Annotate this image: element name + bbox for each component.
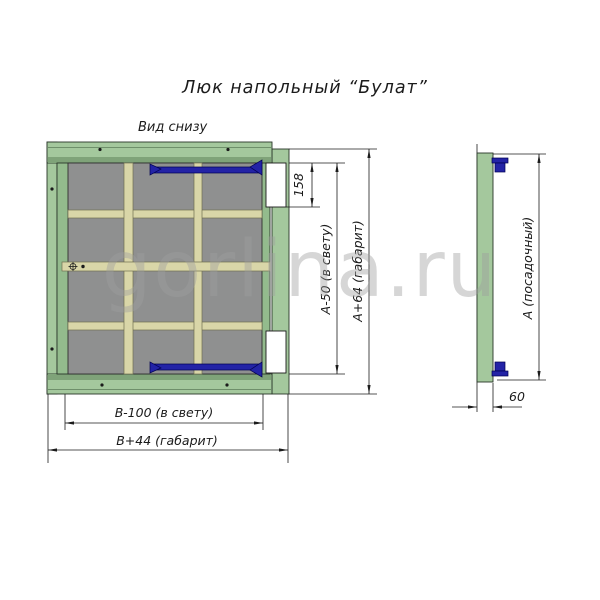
stiffener-bar-horizontal — [68, 322, 262, 330]
hinge-bottom-side — [492, 362, 508, 376]
dim-profile-depth: 60 — [452, 383, 525, 412]
screw-dot — [50, 347, 53, 350]
dim-label: 60 — [509, 389, 525, 404]
hinge-notch-bottom — [266, 331, 286, 373]
drawing-title: Люк напольный “Булат” — [181, 78, 428, 98]
screw-dot — [98, 148, 101, 151]
watermark: gorlina.ru — [102, 225, 498, 315]
dim-clear-width: B-100 (в свету) — [65, 394, 263, 430]
dim-label: A (посадочный) — [520, 217, 535, 320]
hinge-notch-top — [266, 163, 286, 207]
hinge-bar — [154, 167, 259, 173]
drawing-sheet: Люк напольный “Булат” Вид снизу — [0, 0, 600, 600]
frame-left-strip — [47, 142, 57, 394]
hinge-bar — [154, 364, 259, 370]
screw-dot — [50, 187, 53, 190]
screw-dot — [81, 265, 84, 268]
stiffener-bar-horizontal — [68, 210, 262, 218]
frame-bottom-rail-shadow — [48, 374, 271, 380]
screw-dot — [100, 383, 103, 386]
dim-seating-height: A (посадочный) — [493, 154, 546, 380]
screw-dot — [225, 383, 228, 386]
frame-top-rail-shadow — [48, 157, 271, 163]
view-label: Вид снизу — [138, 120, 207, 135]
technical-drawing: Люк напольный “Булат” Вид снизу — [0, 0, 600, 600]
dim-label: B+44 (габарит) — [116, 433, 218, 448]
screw-dot — [226, 148, 229, 151]
dim-label: 158 — [291, 173, 306, 197]
hinge-top-side — [492, 158, 508, 172]
dim-label: B-100 (в свету) — [115, 405, 213, 420]
